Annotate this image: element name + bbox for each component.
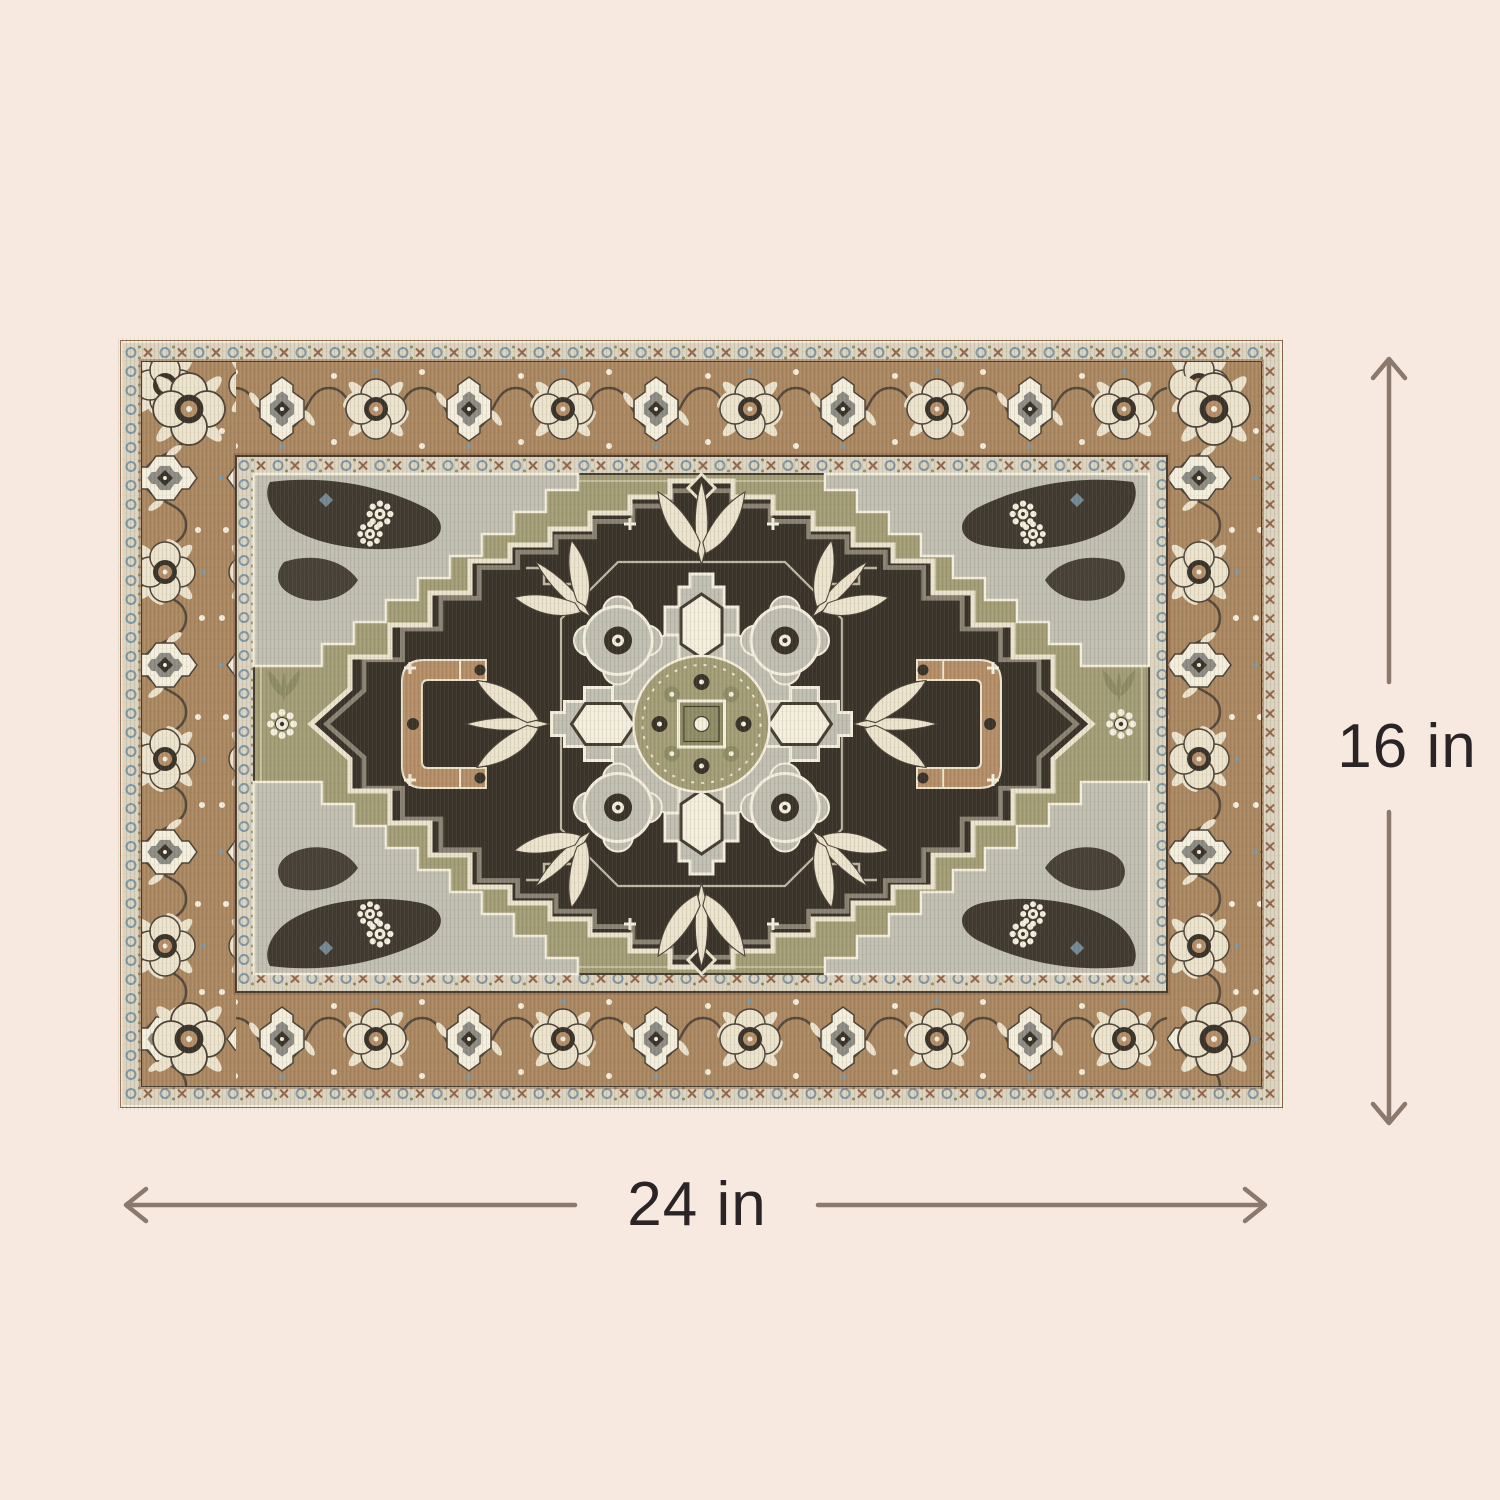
rug-graphic <box>118 338 1285 1110</box>
arrow-down-icon <box>1373 1104 1405 1123</box>
width-dimension-label: 24 in <box>587 1174 807 1236</box>
arrow-right-icon <box>1245 1189 1265 1221</box>
weave-texture <box>118 338 1285 1110</box>
arrow-up-icon <box>1373 359 1405 378</box>
product-dimension-image: 16 in 24 in <box>0 0 1500 1500</box>
arrow-left-icon <box>126 1189 146 1221</box>
height-dimension-label: 16 in <box>1297 716 1500 778</box>
rug-photo <box>118 338 1285 1110</box>
